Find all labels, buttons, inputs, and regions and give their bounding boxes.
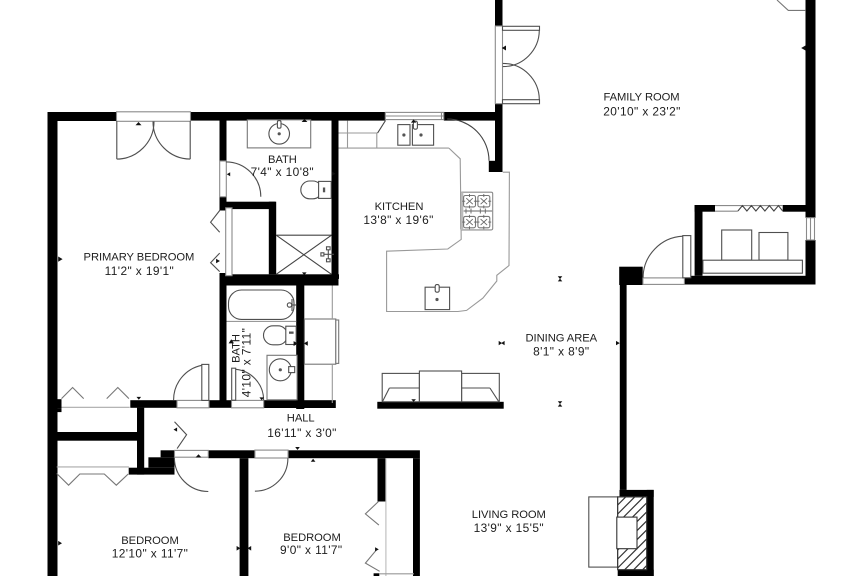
- svg-text:BEDROOM: BEDROOM: [121, 535, 178, 547]
- svg-text:HALL: HALL: [287, 413, 315, 425]
- svg-text:PRIMARY BEDROOM: PRIMARY BEDROOM: [84, 251, 195, 263]
- svg-text:20'10" x 23'2": 20'10" x 23'2": [603, 104, 680, 118]
- svg-text:9'0" x 11'7": 9'0" x 11'7": [280, 543, 343, 557]
- svg-text:LIVING ROOM: LIVING ROOM: [472, 509, 546, 521]
- svg-text:DINING AREA: DINING AREA: [526, 333, 598, 345]
- svg-text:BATH: BATH: [268, 154, 297, 166]
- svg-text:13'8" x 19'6": 13'8" x 19'6": [363, 213, 433, 227]
- svg-text:7'4" x 10'8": 7'4" x 10'8": [251, 165, 314, 179]
- svg-text:KITCHEN: KITCHEN: [375, 201, 424, 213]
- svg-text:13'9" x 15'5": 13'9" x 15'5": [474, 521, 544, 535]
- svg-text:FAMILY ROOM: FAMILY ROOM: [603, 92, 679, 104]
- svg-text:8'1" x 8'9": 8'1" x 8'9": [533, 344, 589, 358]
- svg-text:11'2" x 19'1": 11'2" x 19'1": [105, 264, 175, 278]
- svg-text:4'10" x 7'11": 4'10" x 7'11": [239, 328, 253, 398]
- svg-text:12'10" x 11'7": 12'10" x 11'7": [112, 547, 189, 561]
- svg-text:16'11" x 3'0": 16'11" x 3'0": [267, 426, 337, 440]
